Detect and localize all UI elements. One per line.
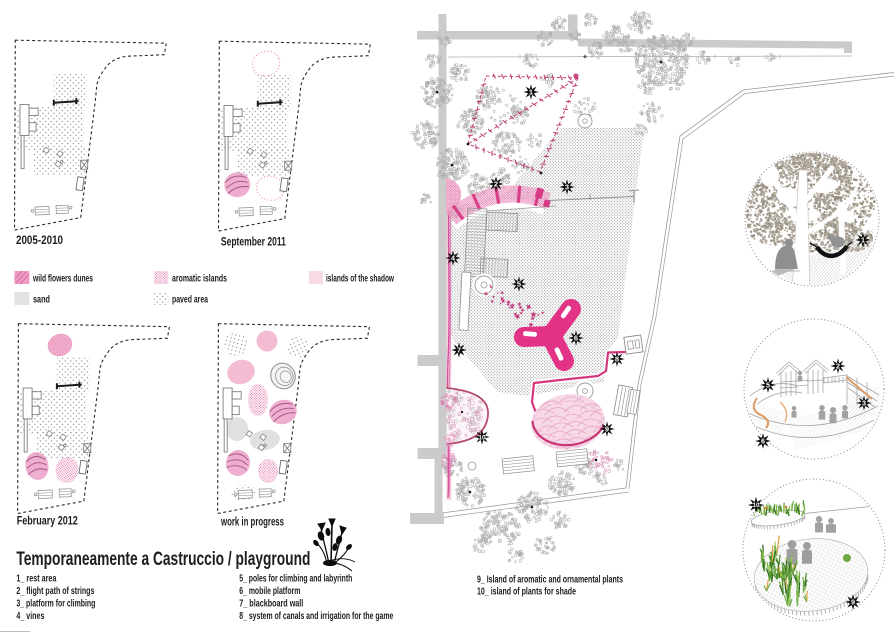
svg-text:5_ poles for climbing and laby: 5_ poles for climbing and labyrinth [239,574,352,585]
svg-text:islands of the shadow: islands of the shadow [326,273,395,285]
svg-text:aromatic islands: aromatic islands [172,273,227,285]
svg-text:paved area: paved area [172,294,208,306]
svg-text:2005-2010: 2005-2010 [16,233,63,247]
svg-text:9: 9 [605,425,609,434]
svg-text:wild flowers dunes: wild flowers dunes [32,273,93,285]
svg-text:9_ Island of aromatic and orna: 9_ Island of aromatic and ornamental pla… [477,574,623,585]
svg-text:February 2012: February 2012 [17,514,78,528]
svg-text:4_ vines: 4_ vines [16,611,44,622]
svg-text:Temporaneamente a Castruccio /: Temporaneamente a Castruccio / playgroun… [16,548,310,570]
svg-text:7_ blackboard wall: 7_ blackboard wall [239,598,303,609]
svg-text:2_ flight path of strings: 2_ flight path of strings [16,586,94,597]
svg-text:5: 5 [517,280,521,289]
svg-text:8_ system of canals and irriga: 8_ system of canals and irrigation for t… [239,611,393,622]
svg-text:6_ mobile platform: 6_ mobile platform [239,586,300,597]
svg-text:1: 1 [529,88,533,97]
svg-text:sand: sand [33,294,50,306]
svg-text:work in progress: work in progress [220,515,284,529]
svg-text:6: 6 [574,334,578,343]
svg-text:10_ island of plants for shade: 10_ island of plants for shade [477,586,576,597]
svg-text:10: 10 [478,434,486,441]
svg-text:7: 7 [457,346,461,355]
svg-text:8: 8 [615,355,619,364]
svg-text:3: 3 [565,183,569,192]
svg-text:2: 2 [494,180,498,189]
svg-text:September 2011: September 2011 [221,235,286,249]
svg-text:1_ rest area: 1_ rest area [16,574,56,585]
svg-text:3_ platform for climbing: 3_ platform for climbing [16,598,95,609]
